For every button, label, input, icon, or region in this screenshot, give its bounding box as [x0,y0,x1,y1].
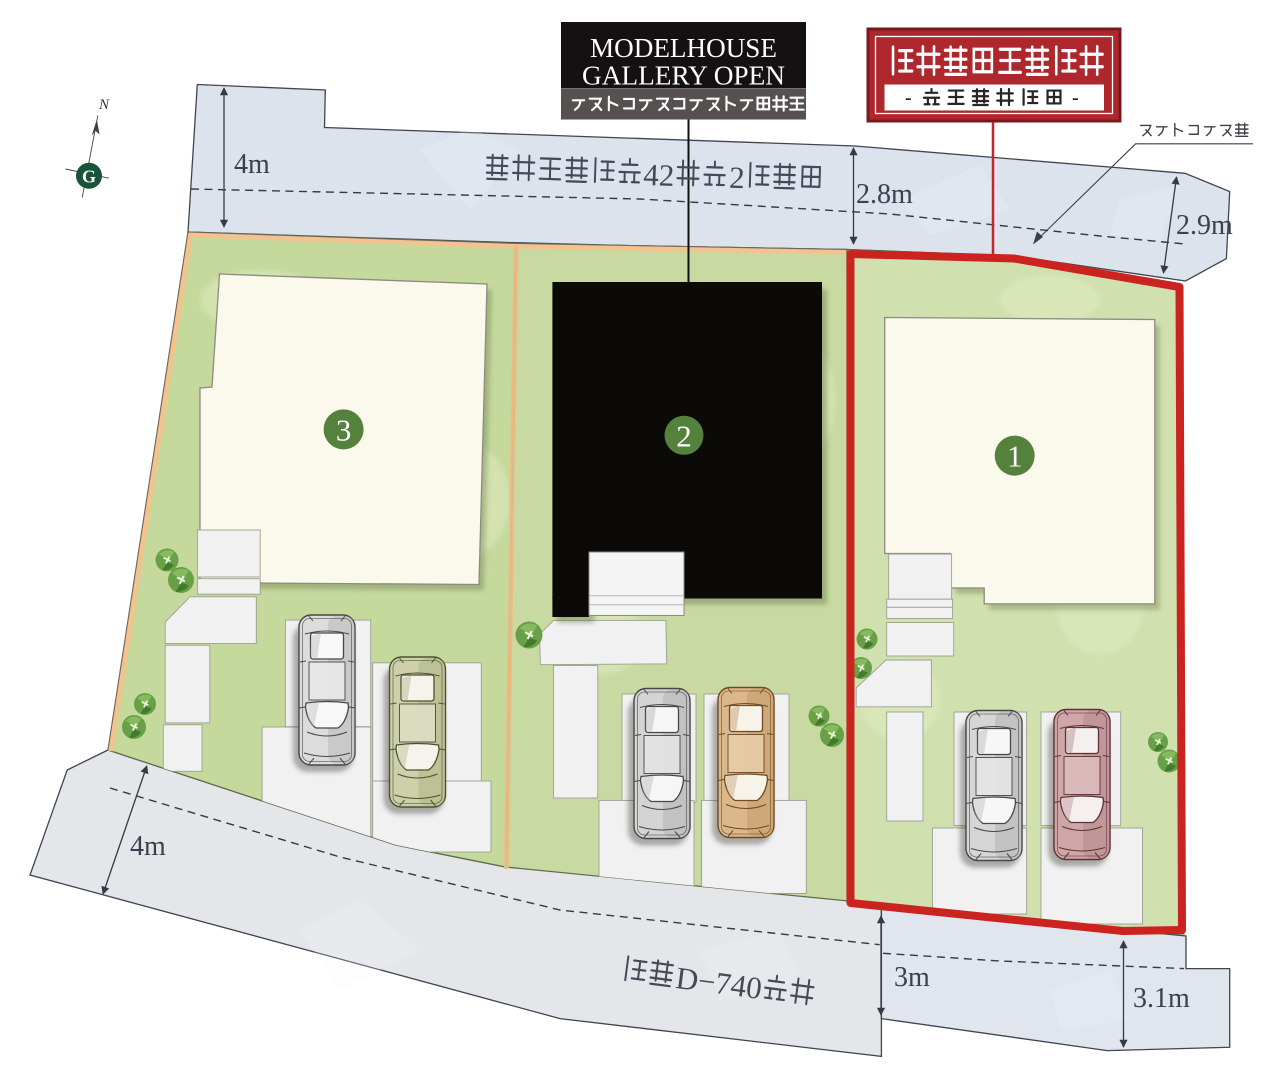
svg-text:3.1m: 3.1m [1133,983,1190,1014]
svg-text:G: G [82,167,96,187]
svg-text:3m: 3m [894,962,930,993]
svg-text:GALLERY OPEN: GALLERY OPEN [582,60,785,91]
svg-text:3: 3 [336,413,352,448]
svg-text:N: N [98,97,110,113]
svg-text:42: 42 [643,157,675,193]
svg-text:-: - [905,87,912,109]
svg-text:-: - [1072,87,1079,109]
svg-text:1: 1 [1007,439,1023,474]
svg-text:2: 2 [676,418,692,453]
svg-text:2.8m: 2.8m [856,179,913,210]
svg-text:4m: 4m [234,149,270,180]
svg-text:2.9m: 2.9m [1176,210,1233,241]
svg-text:MODELHOUSE: MODELHOUSE [590,32,777,63]
svg-text:4m: 4m [130,831,166,862]
svg-text:2: 2 [729,160,746,195]
